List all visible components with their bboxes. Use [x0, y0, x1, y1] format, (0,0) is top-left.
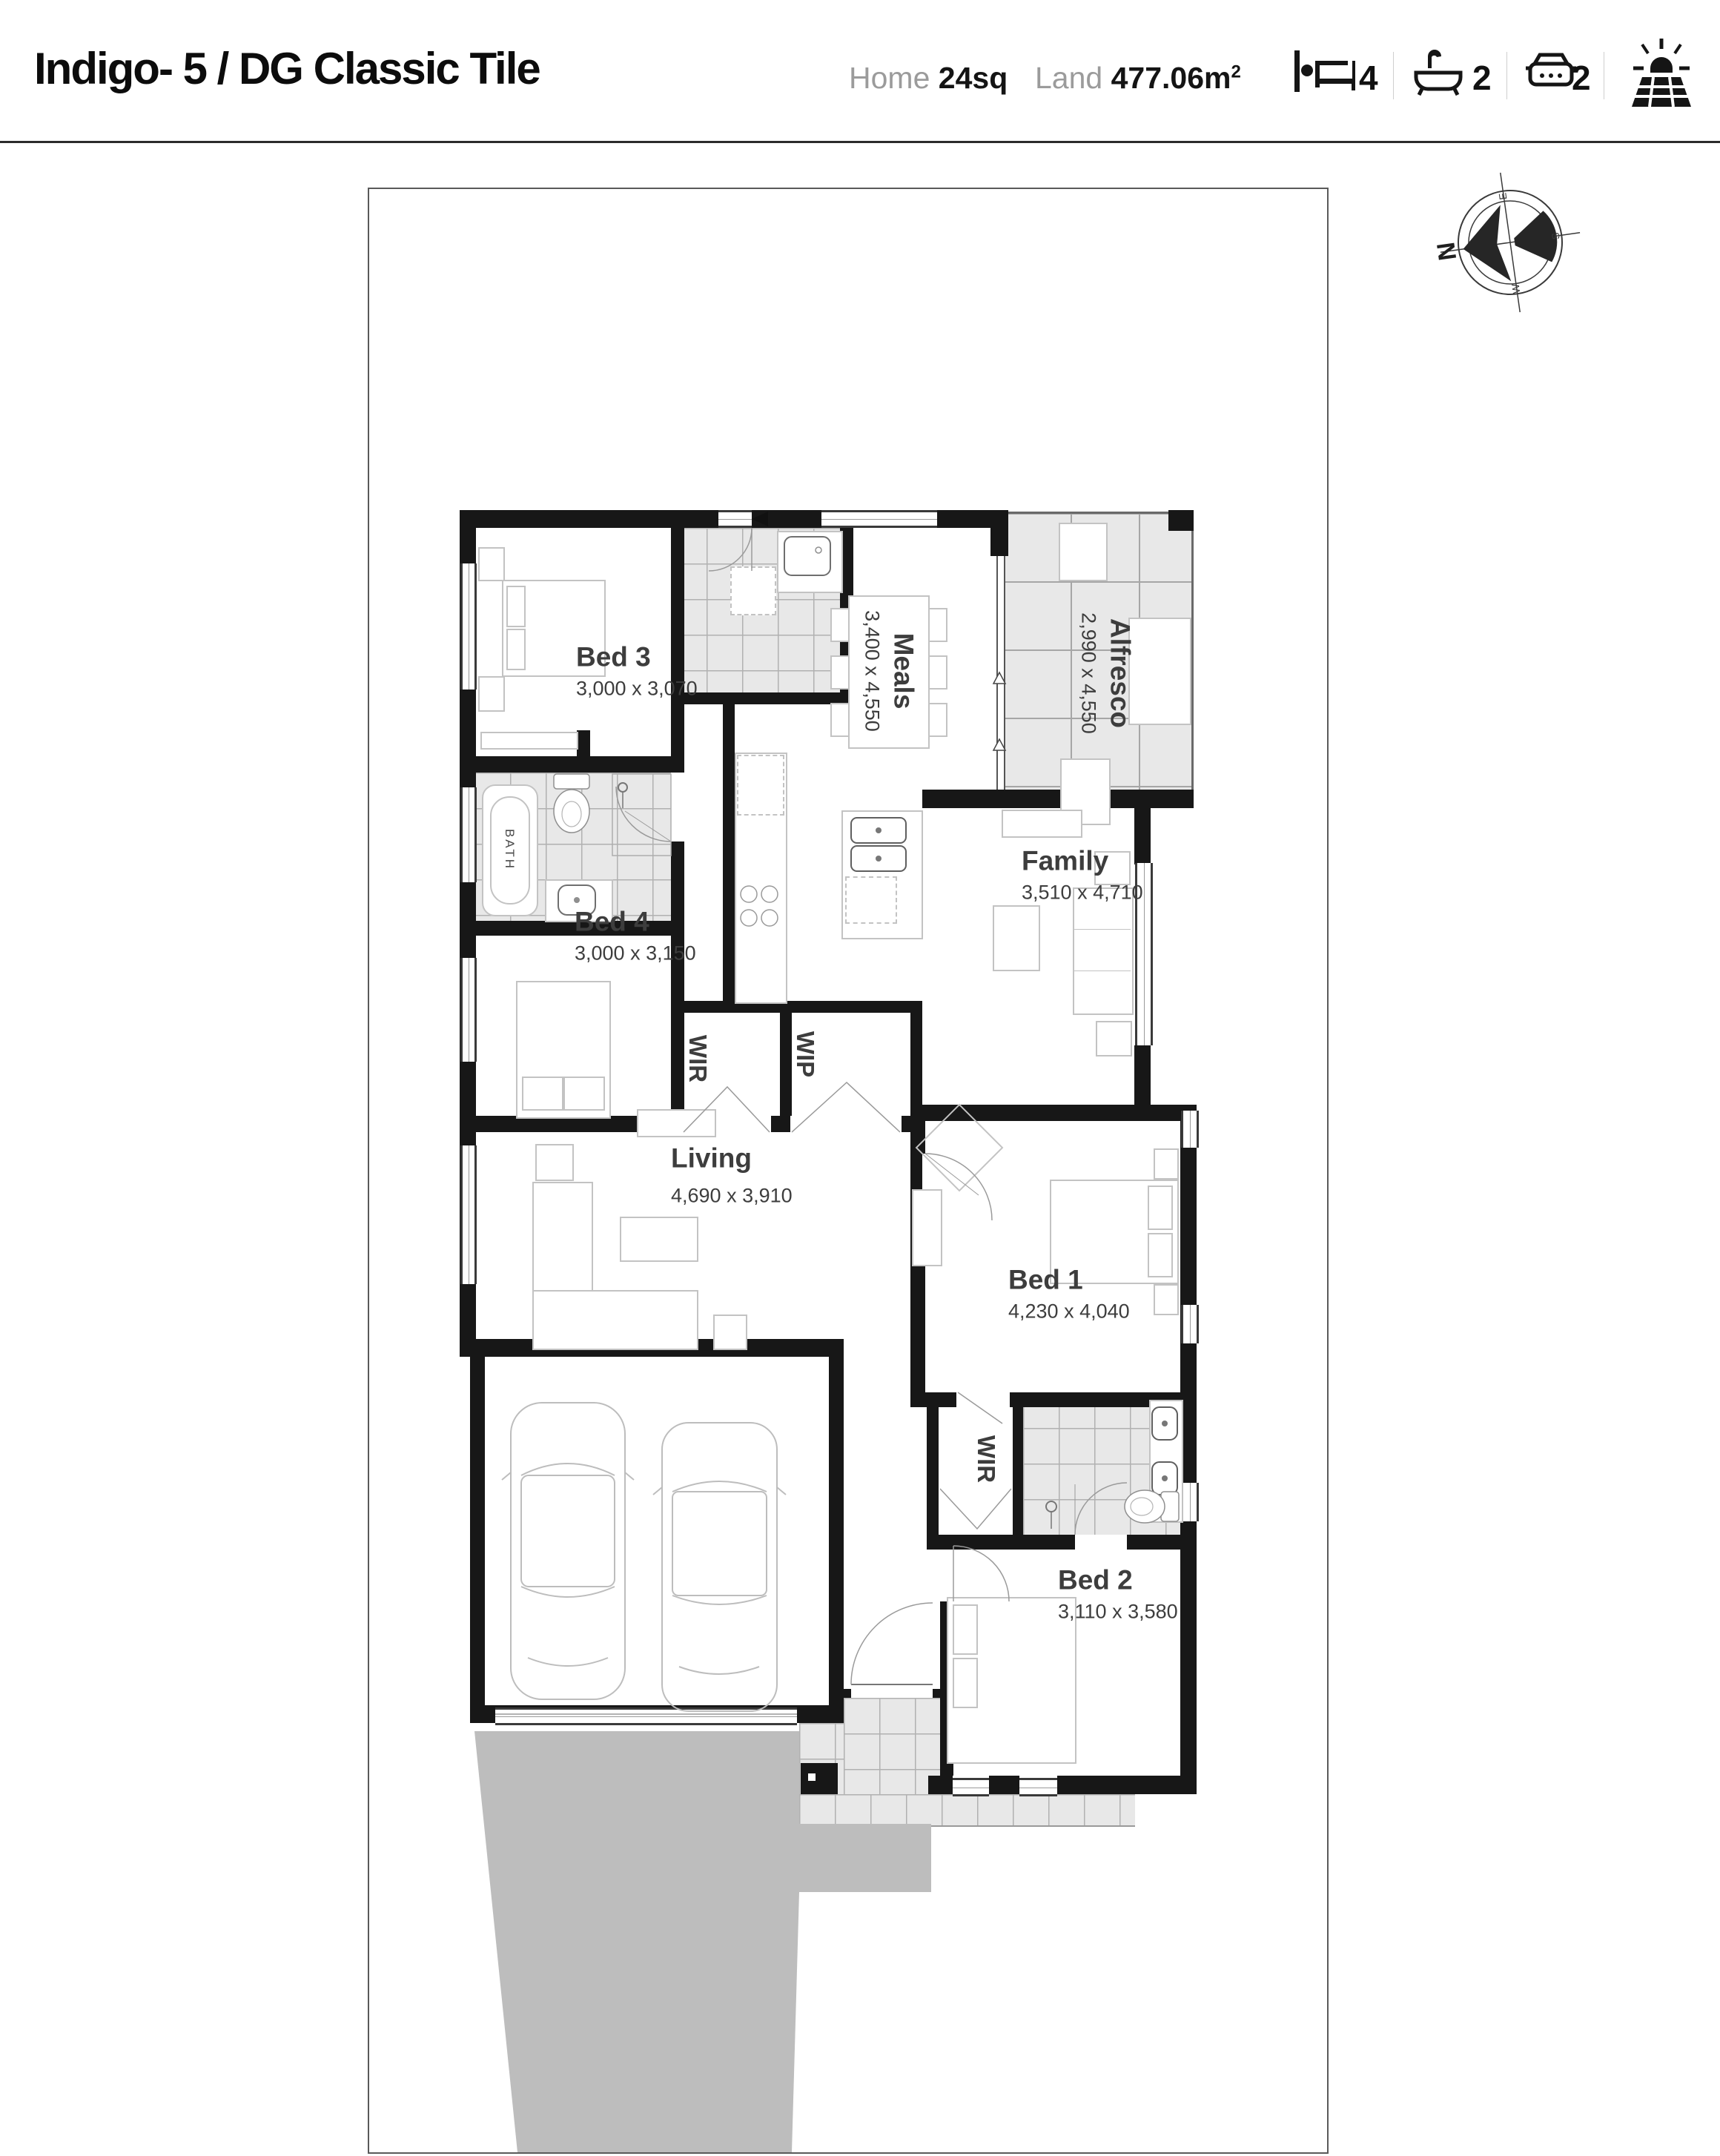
- room-label-wip: WIP: [791, 1031, 819, 1077]
- car-outline: [502, 1403, 634, 1699]
- room-label-wir-master: WIR: [972, 1435, 1000, 1483]
- entry-arrow-icon: [752, 512, 768, 526]
- plan-details-layer: [0, 0, 1720, 2156]
- car-outline: [653, 1423, 786, 1711]
- room-label-wir-hall: WIR: [684, 1035, 712, 1082]
- floorplan-page: Indigo- 5 / DG Classic Tile Home 24sq La…: [0, 0, 1720, 2156]
- room-label-meals: Meals 3,400 x 4,550: [861, 610, 919, 732]
- room-label-bath: BATH: [502, 829, 517, 870]
- room-label-alfresco: Alfresco 2,990 x 4,550: [1077, 612, 1136, 734]
